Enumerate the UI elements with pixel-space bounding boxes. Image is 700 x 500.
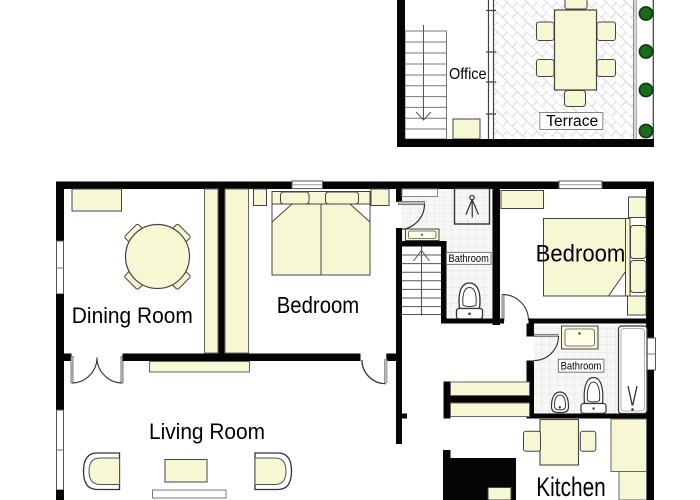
svg-text:Kitchen: Kitchen — [536, 472, 606, 500]
svg-text:Living Room: Living Room — [149, 419, 265, 444]
svg-text:Dining Room: Dining Room — [72, 303, 193, 328]
svg-text:Bathroom: Bathroom — [449, 253, 489, 265]
svg-text:Bedroom: Bedroom — [277, 292, 360, 318]
svg-text:Bathroom: Bathroom — [561, 361, 602, 373]
svg-text:Bedroom: Bedroom — [536, 241, 626, 267]
svg-text:Office: Office — [449, 66, 487, 83]
svg-text:Terrace: Terrace — [546, 113, 598, 130]
